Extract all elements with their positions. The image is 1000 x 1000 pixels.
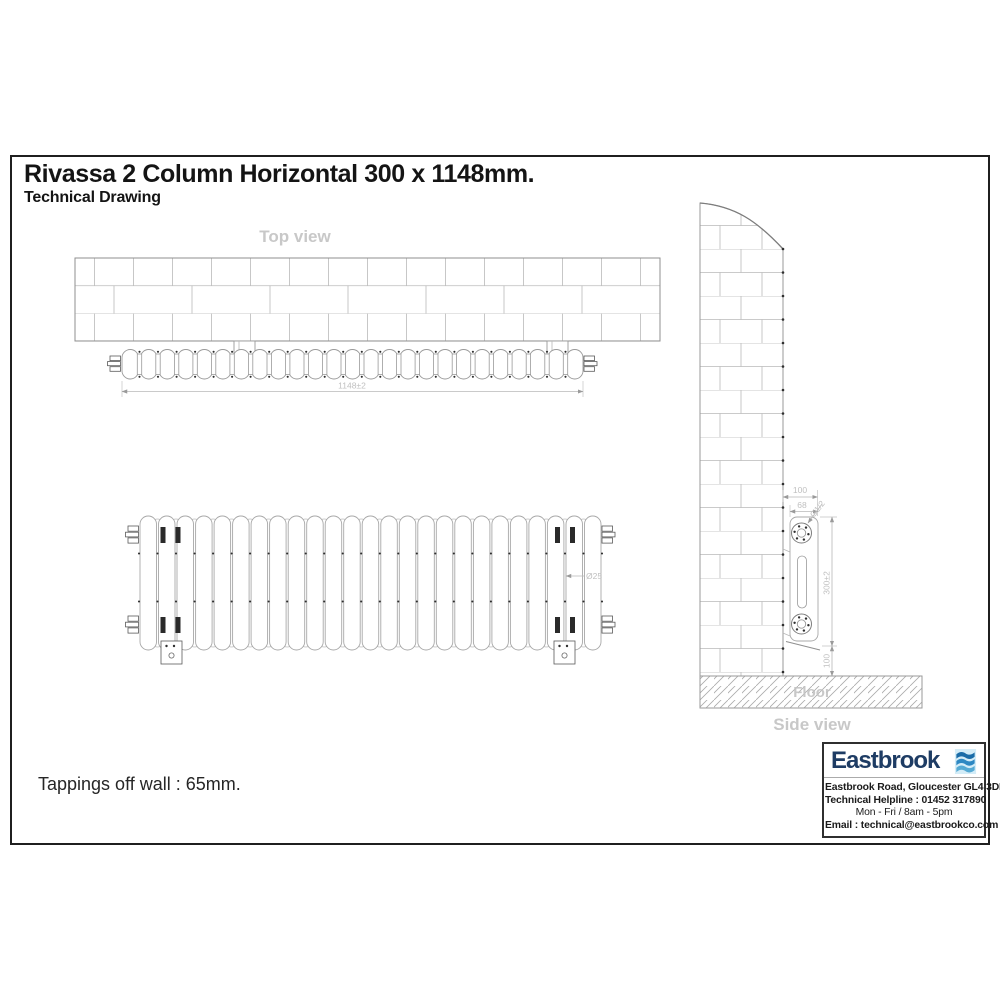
wall-offset-dim-text: 100 [793,485,807,495]
top-view-width-dimension: 1148±2 [122,381,583,398]
technical-drawing-canvas: Top view 1148±2 [0,0,1000,1000]
top-view-label: Top view [259,227,331,246]
side-view-floor-clearance-dimension: 100 [822,646,833,676]
side-view-tapping-thread-label: G1/2 [808,498,827,523]
front-view: Ø25 [126,516,616,664]
front-view-front-columns [140,516,601,650]
brand-card-details: Eastbrook Road, Gloucester GL4 3DB Techn… [824,778,984,836]
top-view-radiator-sections [122,350,583,380]
floor-clearance-dim-text: 100 [822,654,832,668]
top-view-width-dim-text: 1148±2 [338,381,366,391]
tapping-thread-dim-text: G1/2 [808,498,827,519]
floor-label: Floor [793,684,831,701]
brand-email: Email : technical@eastbrookco.com [825,820,983,831]
depth-dim-text: 68 [797,500,807,510]
front-view-dia-dim-text: Ø25 [586,571,602,581]
brand-address: Eastbrook Road, Gloucester GL4 3DB [825,782,983,793]
side-view-wall [700,203,783,676]
side-view-label: Side view [773,715,851,734]
side-view-top-flange [792,523,812,543]
top-view: Top view 1148±2 [75,227,660,397]
brand-helpline: Technical Helpline : 01452 317890 [825,795,983,806]
height-dim-text: 300±2 [822,571,832,595]
eastbrook-waves-icon [954,749,977,774]
brand-hours: Mon - Fri / 8am - 5pm [825,807,983,818]
side-view: 100 68 G1/2 300±2 100 Floor [700,203,922,734]
tappings-note: Tappings off wall : 65mm. [38,774,241,795]
brand-name: Eastbrook [831,747,939,775]
top-view-wall [75,258,660,341]
side-view-height-dimension: 300±2 [820,517,837,646]
brand-row: Eastbrook [824,744,984,778]
side-view-bottom-flange [792,614,812,634]
technical-drawing-page: Rivassa 2 Column Horizontal 300 x 1148mm… [0,0,1000,1000]
brand-card: Eastbrook Eastbrook Road, Gloucester GL4… [822,742,986,838]
